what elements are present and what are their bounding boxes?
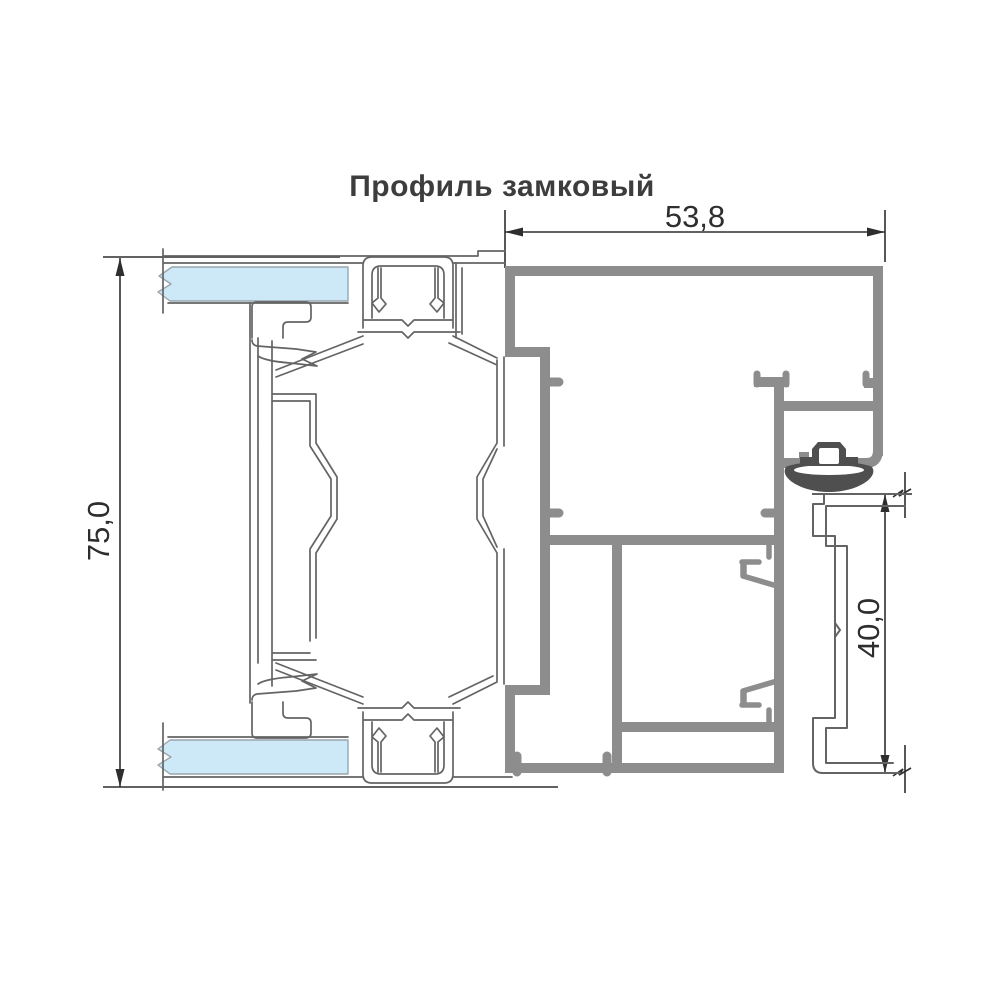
glass-pane-top [158, 267, 348, 301]
arrowhead-lock-top [881, 494, 890, 512]
break-marks [893, 472, 911, 793]
arrowhead-width-left [505, 228, 523, 237]
technical-drawing-lock-profile: Профиль замковый 53,8 75,0 40,0 [0, 0, 1000, 1000]
arrowhead-height-top [116, 258, 125, 276]
sash-profile [163, 249, 512, 790]
glazing-bead-channels [358, 257, 460, 783]
dim-label-width: 53,8 [665, 199, 725, 234]
drawing-canvas: Профиль замковый 53,8 75,0 40,0 [0, 0, 1000, 1000]
drawing-title: Профиль замковый [349, 170, 655, 203]
dim-label-height: 75,0 [81, 501, 116, 561]
glass-pane-bottom [158, 740, 348, 774]
arrowhead-width-right [867, 228, 885, 237]
arrowhead-height-bottom [116, 769, 125, 787]
dim-label-lock-height: 40,0 [851, 598, 886, 658]
seal-cap-hole [819, 448, 839, 464]
screw-port-nubs [517, 382, 779, 772]
rubber-seal [785, 442, 874, 492]
sash-wall-lines [250, 263, 504, 704]
seal-dome-highlight [794, 465, 864, 475]
anti-theft-hooks [742, 545, 777, 722]
